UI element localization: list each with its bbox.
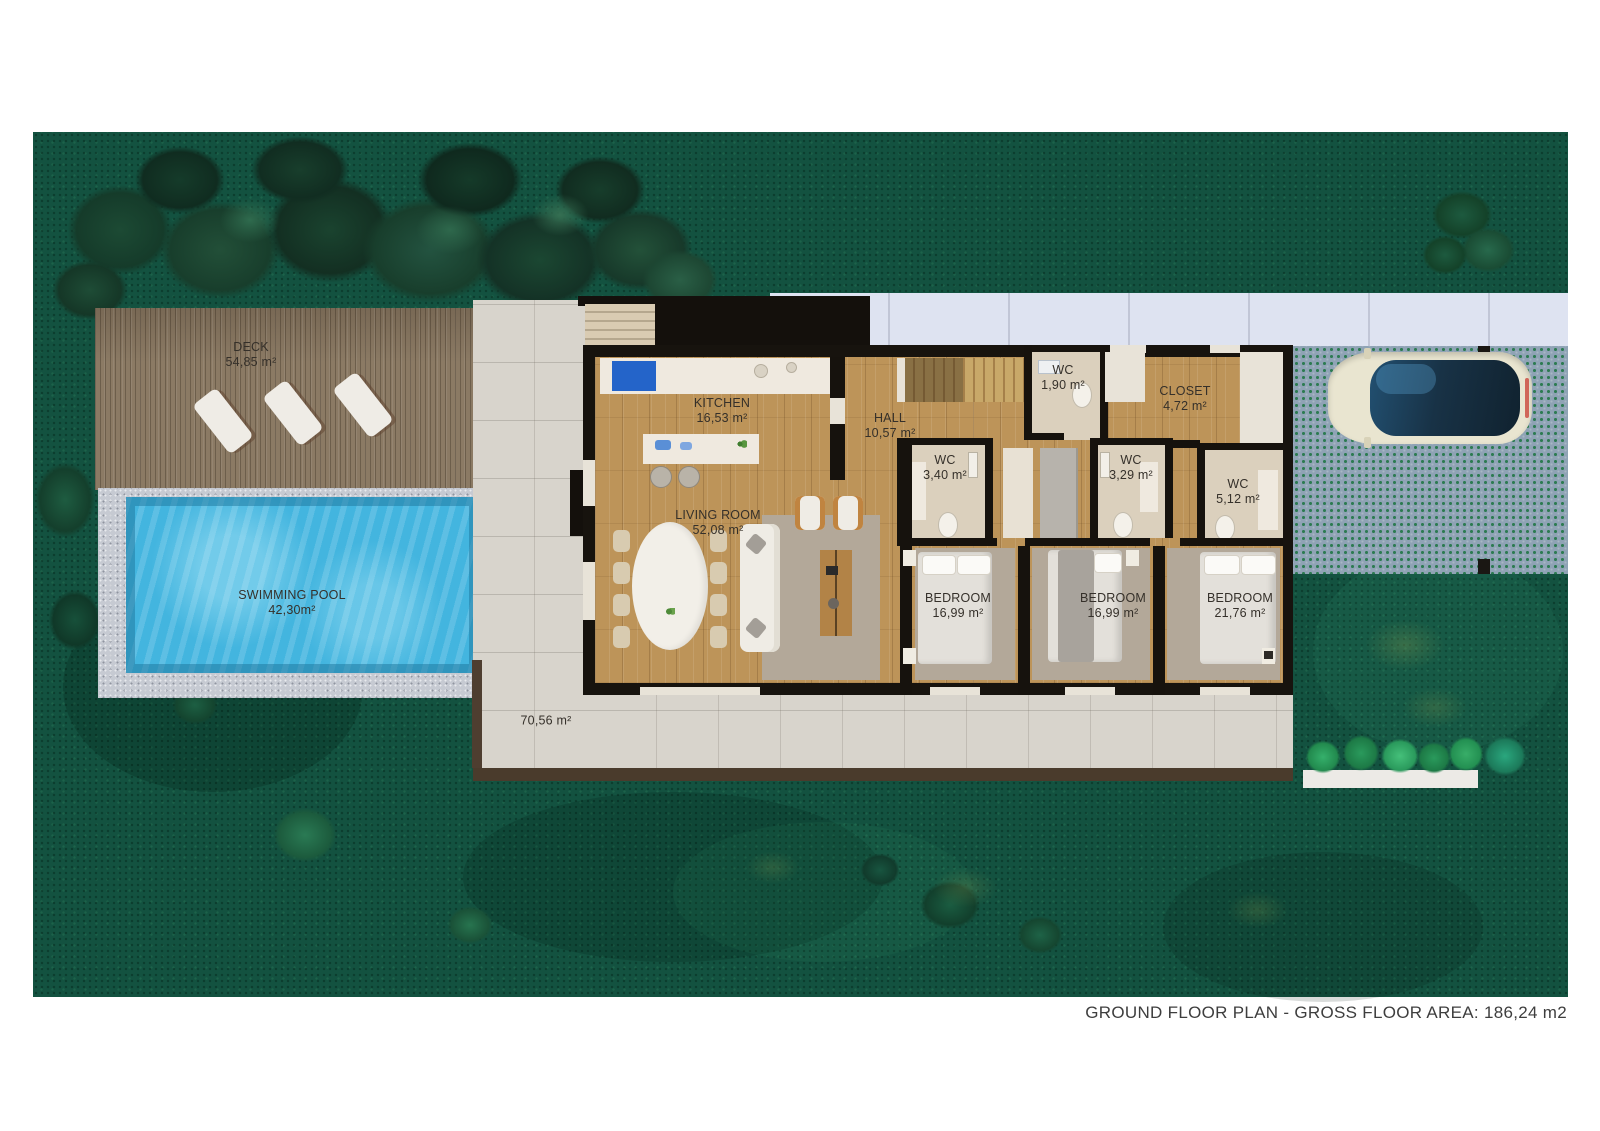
- bed-pillow: [957, 555, 991, 575]
- pool-area: 42,30m²: [238, 603, 345, 618]
- dry-plants: [1215, 885, 1300, 935]
- deck-label: DECK 54,85 m²: [226, 340, 277, 371]
- dry-plants: [735, 845, 810, 890]
- retaining-edge: [472, 660, 482, 768]
- door-opening: [830, 398, 845, 424]
- dining-table: [632, 522, 708, 650]
- tree: [1415, 229, 1475, 281]
- terrace-bottom: [595, 695, 1293, 768]
- island-plant: [733, 440, 747, 448]
- wc3-area: 5,12 m²: [1216, 492, 1260, 507]
- pool-name: SWIMMING POOL: [238, 588, 345, 603]
- dry-plants: [920, 860, 1010, 915]
- wc1-name: WC: [923, 453, 967, 468]
- dining-chair: [613, 594, 630, 616]
- closet-label: CLOSET 4,72 m²: [1159, 384, 1210, 415]
- closet-cabinet: [1240, 352, 1283, 448]
- living-label: LIVING ROOM 52,08 m²: [675, 508, 761, 539]
- dining-chair: [613, 530, 630, 552]
- wc2-area: 3,29 m²: [1109, 468, 1153, 483]
- bed-pillow: [1094, 553, 1122, 573]
- plan-caption: GROUND FLOOR PLAN - GROSS FLOOR AREA: 18…: [1085, 1003, 1567, 1023]
- wc3-name: WC: [1216, 477, 1260, 492]
- wc1-label: WC 3,40 m²: [923, 453, 967, 484]
- kitchen-area: 16,53 m²: [694, 411, 750, 426]
- sliding-door: [1065, 687, 1115, 695]
- window: [583, 460, 595, 506]
- table-decor: [826, 566, 838, 575]
- walkway-path: [770, 293, 1568, 346]
- window: [1110, 345, 1146, 353]
- bush: [440, 900, 500, 950]
- bedroom1-name: BEDROOM: [925, 591, 991, 606]
- grass-shade-patch: [1163, 852, 1483, 1002]
- terrace-edge: [473, 768, 1293, 781]
- bedroom3-name: BEDROOM: [1207, 591, 1273, 606]
- terrace-area: 70,56 m²: [521, 713, 572, 728]
- tree-highlight: [405, 198, 495, 262]
- dining-chair: [710, 562, 727, 584]
- bush: [263, 799, 347, 871]
- wall-pier: [570, 470, 583, 536]
- wall-segment: [1090, 438, 1098, 538]
- deck-area: 54,85 m²: [226, 355, 277, 370]
- pool-label: SWIMMING POOL 42,30m²: [238, 588, 345, 619]
- wall-segment: [897, 438, 993, 445]
- window: [1210, 345, 1240, 353]
- sliding-door: [1200, 687, 1250, 695]
- dining-chair: [613, 626, 630, 648]
- nightstand: [903, 648, 916, 664]
- wc-hall-name: WC: [1041, 363, 1085, 378]
- kitchen-name: KITCHEN: [694, 396, 750, 411]
- closet-cabinet: [1105, 352, 1145, 402]
- dining-chair: [710, 626, 727, 648]
- bed-pillow: [1204, 555, 1240, 575]
- wc-hall-area: 1,90 m²: [1041, 378, 1085, 393]
- wall-segment: [1025, 538, 1150, 546]
- car-glass-highlight: [1376, 364, 1436, 394]
- wall-segment: [1018, 546, 1030, 695]
- bedroom2-area: 16,99 m²: [1080, 606, 1146, 621]
- wc2-toilet: [1113, 512, 1133, 538]
- wc1-toilet: [938, 512, 958, 538]
- deck-name: DECK: [226, 340, 277, 355]
- tree-highlight: [522, 187, 598, 243]
- island-dishes: [680, 442, 692, 450]
- wc3-vanity: [1258, 470, 1278, 530]
- indoor-stairs-shade: [905, 358, 963, 402]
- cooktop-burner: [786, 362, 797, 373]
- wall-segment: [1153, 546, 1165, 695]
- wc2-name: WC: [1109, 453, 1153, 468]
- wc2-label: WC 3,29 m²: [1109, 453, 1153, 484]
- bedroom1-label: BEDROOM 16,99 m²: [925, 591, 991, 622]
- gate-post: [1478, 559, 1490, 574]
- bedroom3-label: BEDROOM 21,76 m²: [1207, 591, 1273, 622]
- closet-area: 4,72 m²: [1159, 399, 1210, 414]
- car-mirror: [1364, 437, 1371, 448]
- tree-highlight: [210, 190, 290, 250]
- living-area: 52,08 m²: [675, 523, 761, 538]
- wall-segment: [1197, 443, 1283, 450]
- kitchen-label: KITCHEN 16,53 m²: [694, 396, 750, 427]
- wardrobe: [1040, 448, 1078, 538]
- hall-name: HALL: [865, 411, 916, 426]
- nightstand: [903, 550, 916, 566]
- planter-bush: [1443, 731, 1489, 777]
- floor-plan-render: DECK 54,85 m² SWIMMING POOL 42,30m² 70,5…: [0, 0, 1600, 1131]
- nightstand: [1126, 550, 1139, 566]
- bedroom1-area: 16,99 m²: [925, 606, 991, 621]
- car-mirror: [1364, 348, 1371, 359]
- wall-segment: [1197, 443, 1205, 545]
- armchair: [795, 496, 825, 530]
- pool-water: [126, 497, 478, 673]
- terrace-label: 70,56 m²: [521, 713, 572, 728]
- wall-segment: [1165, 438, 1173, 538]
- wc1-area: 3,40 m²: [923, 468, 967, 483]
- closet-name: CLOSET: [1159, 384, 1210, 399]
- dry-plants: [1350, 610, 1460, 680]
- bed-pillow: [1241, 555, 1276, 575]
- parked-car: [1328, 352, 1532, 444]
- wc3-label: WC 5,12 m²: [1216, 477, 1260, 508]
- kitchen-sink: [612, 361, 656, 391]
- window: [583, 562, 595, 620]
- dining-chair: [710, 594, 727, 616]
- dry-plants: [1390, 680, 1480, 735]
- bar-stool: [678, 466, 700, 488]
- bar-stool: [650, 466, 672, 488]
- table-runner: [835, 550, 837, 636]
- wall-segment: [1090, 438, 1173, 445]
- sliding-door: [930, 687, 980, 695]
- bedroom3-area: 21,76 m²: [1207, 606, 1273, 621]
- cooktop-burner: [754, 364, 768, 378]
- bush: [1010, 910, 1070, 960]
- island-dishes: [655, 440, 671, 450]
- corridor-panel: [1003, 448, 1033, 538]
- dining-chair: [613, 562, 630, 584]
- wall-segment: [985, 438, 993, 538]
- table-plant: [663, 608, 675, 615]
- bed-pillow: [922, 555, 956, 575]
- nightstand-item: [1264, 651, 1273, 659]
- wall-segment: [1024, 433, 1064, 440]
- bush: [25, 450, 105, 550]
- stair-landing: [897, 358, 905, 402]
- sliding-door: [640, 687, 760, 695]
- wall-segment: [897, 538, 997, 546]
- wc-hall-label: WC 1,90 m²: [1041, 363, 1085, 394]
- hall-label: HALL 10,57 m²: [865, 411, 916, 442]
- wall-segment: [1024, 345, 1032, 440]
- table-decor: [828, 598, 839, 609]
- wc1-radiator: [968, 452, 978, 478]
- bush: [854, 848, 906, 892]
- bedroom2-name: BEDROOM: [1080, 591, 1146, 606]
- car-roof-glass: [1370, 360, 1520, 436]
- wall-segment: [1180, 538, 1283, 546]
- living-name: LIVING ROOM: [675, 508, 761, 523]
- armchair: [833, 496, 863, 530]
- bedroom2-label: BEDROOM 16,99 m²: [1080, 591, 1146, 622]
- car-taillight: [1525, 378, 1529, 418]
